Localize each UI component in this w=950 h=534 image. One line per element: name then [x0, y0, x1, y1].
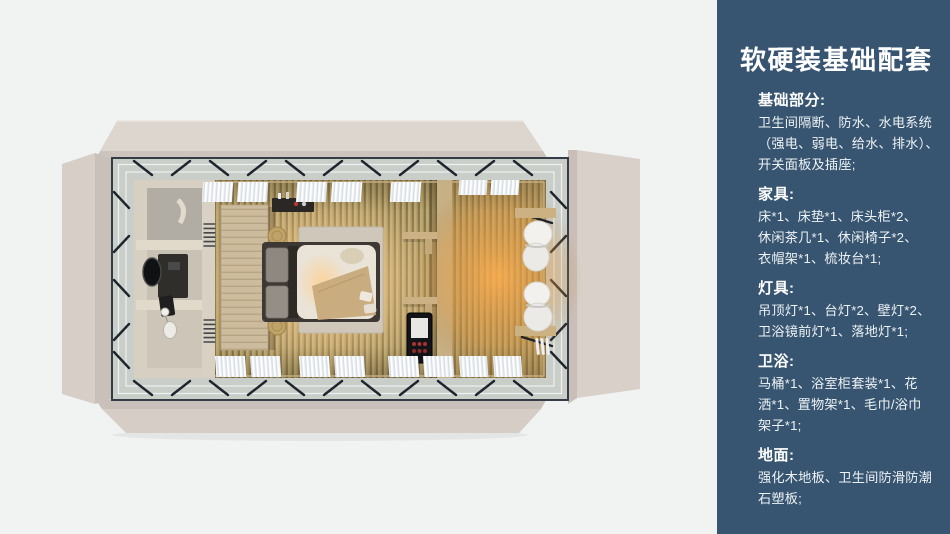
pleated-curtain: [459, 356, 488, 377]
wine-1: [412, 342, 416, 346]
floorplan-render: [0, 0, 717, 534]
bottle-4: [302, 202, 306, 206]
wine-6: [423, 349, 427, 353]
shelf-1-bracket: [425, 239, 432, 254]
section-heading: 家具:: [758, 186, 932, 204]
left-flap-fold: [95, 153, 112, 404]
bed: [262, 242, 380, 322]
curtain-rail-top: [515, 208, 556, 218]
spec-line: 卫生间隔断、防水、水电系统: [758, 112, 932, 133]
section-heading: 灯具:: [758, 280, 932, 298]
spec-line: 衣帽架*1、梳妆台*1;: [758, 248, 932, 269]
spec-line: 吊顶灯*1、台灯*2、壁灯*2、: [758, 300, 932, 321]
pleated-curtain: [296, 182, 327, 202]
pleated-curtain: [390, 182, 421, 202]
spec-line: 强化木地板、卫生间防滑防潮: [758, 467, 932, 488]
shower-room-floor: [147, 188, 202, 240]
vanity-counter: [158, 254, 188, 298]
spec-line: （强电、弱电、给水、排水）、: [758, 133, 932, 154]
minibar-panel: [411, 318, 428, 338]
top-flap: [100, 121, 543, 151]
sidebar-title: 软硬装基础配套: [740, 44, 932, 76]
curtain-ends: [535, 338, 550, 355]
wine-5: [418, 349, 422, 353]
swag-2-top: [524, 282, 550, 306]
spec-line: 床*1、床垫*1、床头柜*2、: [758, 206, 932, 227]
wall-shelf-2: [403, 297, 437, 304]
toilet-room-floor: [147, 310, 202, 368]
pleated-curtain: [458, 180, 487, 195]
shower-handle: [161, 308, 169, 316]
spec-line: 洒*1、置物架*1、毛巾/浴巾: [758, 394, 932, 415]
spec-section-flooring: 地面: 强化木地板、卫生间防滑防潮 石塑板;: [758, 447, 932, 509]
curtain-swag-2: [524, 282, 552, 331]
section-heading: 地面:: [758, 447, 932, 465]
wine-3: [423, 342, 427, 346]
spec-line: 卫浴镜前灯*1、落地灯*1;: [758, 321, 932, 342]
spec-section-furniture: 家具: 床*1、床垫*1、床头柜*2、 休闲茶几*1、休闲椅子*2、 衣帽架*1…: [758, 186, 932, 269]
headboard-panel: [221, 205, 268, 350]
pleated-curtain: [215, 356, 246, 377]
bottle-2: [286, 192, 289, 199]
spec-section-lighting: 灯具: 吊顶灯*1、台灯*2、壁灯*2、 卫浴镜前灯*1、落地灯*1;: [758, 280, 932, 342]
slide: 软硬装基础配套 基础部分: 卫生间隔断、防水、水电系统 （强电、弱电、给水、排水…: [0, 0, 950, 534]
pleated-curtain: [423, 356, 454, 377]
bathroom-right-wall: [202, 182, 215, 376]
vanity-sink: [168, 262, 180, 270]
vanity-mirror: [143, 258, 161, 286]
bottle-1: [278, 193, 281, 199]
spec-section-sanitary: 卫浴: 马桶*1、浴室柜套装*1、花 洒*1、置物架*1、毛巾/浴巾 架子*1;: [758, 353, 932, 436]
wine-2: [418, 342, 422, 346]
left-flap: [62, 153, 95, 404]
pleated-curtain: [202, 182, 233, 202]
spec-section-basics: 基础部分: 卫生间隔断、防水、水电系统 （强电、弱电、给水、排水）、 开关面板及…: [758, 92, 932, 175]
pleated-curtain: [490, 180, 519, 195]
bathroom-shelf-1: [136, 240, 208, 250]
duvet-crumple: [340, 248, 364, 264]
bathroom-zone: [134, 180, 216, 378]
toilet: [164, 322, 177, 339]
pleated-curtain: [493, 356, 522, 377]
wall-shelf-1: [403, 232, 437, 239]
pleated-curtain: [331, 182, 362, 202]
spec-sidebar: 软硬装基础配套 基础部分: 卫生间隔断、防水、水电系统 （强电、弱电、给水、排水…: [717, 0, 950, 534]
wine-4: [412, 349, 416, 353]
spec-line: 架子*1;: [758, 415, 932, 436]
pleated-curtain: [237, 182, 268, 202]
minibar-cabinet: [407, 313, 432, 363]
pleated-curtain: [299, 356, 330, 377]
pillow-1: [266, 248, 288, 282]
pleated-curtain: [388, 356, 419, 377]
spec-line: 开关面板及插座;: [758, 154, 932, 175]
pleated-curtain: [334, 356, 365, 377]
section-heading: 卫浴:: [758, 353, 932, 371]
spec-line: 马桶*1、浴室柜套装*1、花: [758, 373, 932, 394]
spec-line: 石塑板;: [758, 488, 932, 509]
pleated-curtain: [250, 356, 281, 377]
right-flap: [577, 150, 640, 398]
floorplan-svg: [0, 0, 717, 534]
lounge-lamp-glow: [412, 182, 582, 372]
spec-line: 休闲茶几*1、休闲椅子*2、: [758, 227, 932, 248]
bottom-flap: [102, 409, 541, 433]
bottom-flap-fold: [96, 400, 546, 409]
pillow-2: [266, 286, 288, 318]
section-heading: 基础部分:: [758, 92, 932, 110]
bottle-3: [294, 202, 298, 206]
throw-pillow-2: [364, 303, 377, 314]
curtain-swag-1: [523, 221, 552, 271]
